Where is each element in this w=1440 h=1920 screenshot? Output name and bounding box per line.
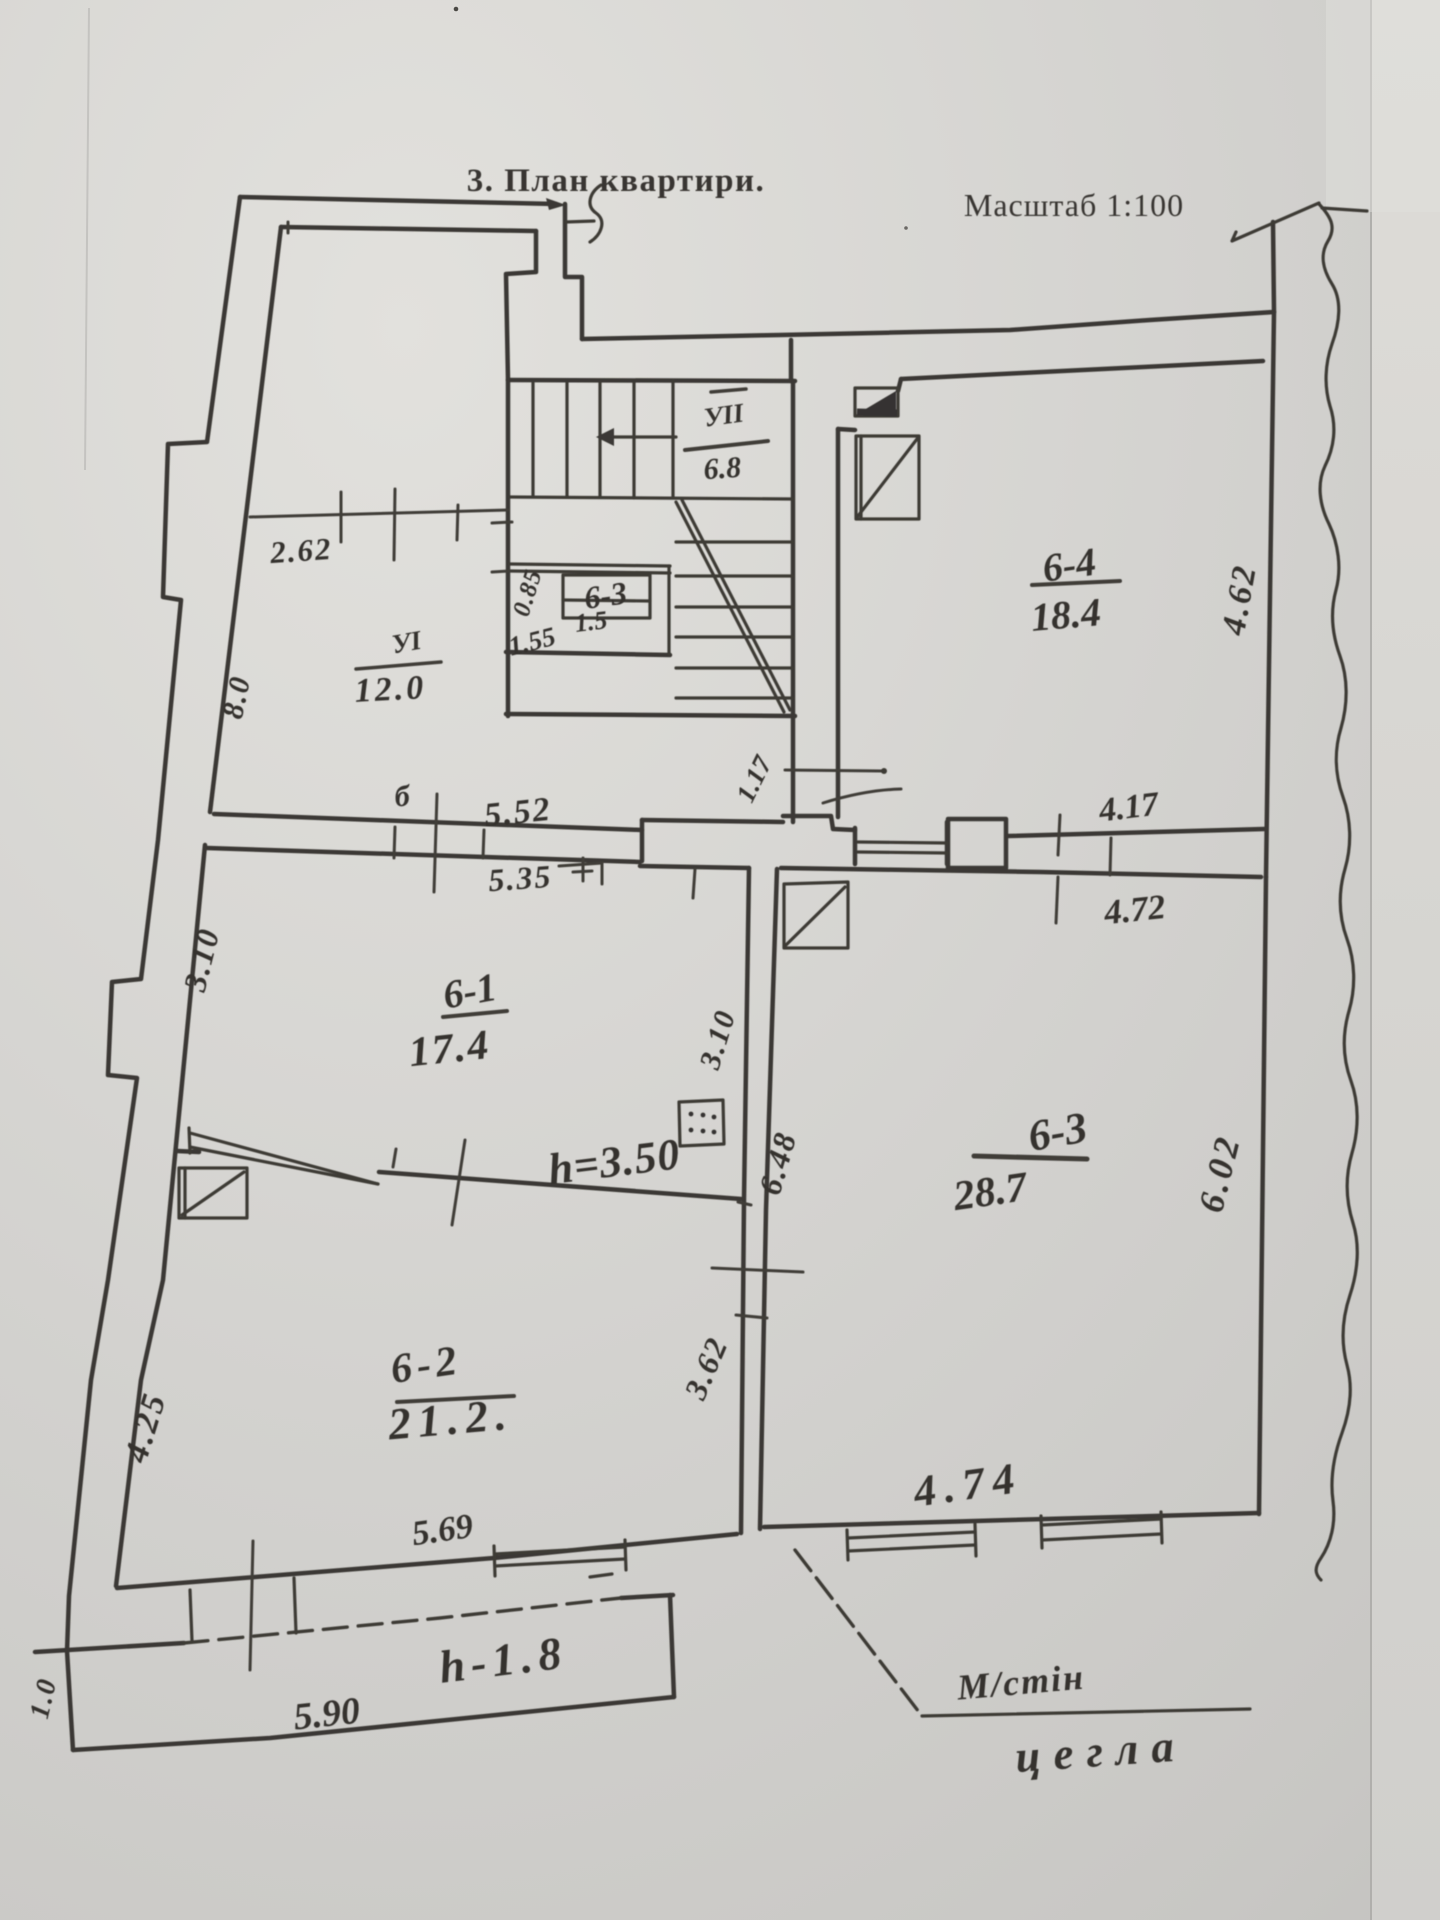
svg-text:6.8: 6.8 xyxy=(702,451,742,487)
svg-text:3. План квартири.: 3. План квартири. xyxy=(467,163,766,199)
svg-text:5.52: 5.52 xyxy=(482,791,553,835)
svg-text:6-2: 6-2 xyxy=(388,1337,465,1392)
svg-text:2.62: 2.62 xyxy=(268,531,334,570)
svg-text:18.4: 18.4 xyxy=(1029,589,1103,640)
svg-text:5.90: 5.90 xyxy=(291,1690,362,1739)
svg-text:4.17: 4.17 xyxy=(1096,785,1163,829)
svg-text:УІІ: УІІ xyxy=(702,397,747,432)
svg-text:17.4: 17.4 xyxy=(407,1022,493,1076)
svg-text:Масштаб 1:100: Масштаб 1:100 xyxy=(964,187,1184,223)
svg-text:6-4: 6-4 xyxy=(1040,539,1099,591)
svg-text:4.72: 4.72 xyxy=(1101,887,1167,932)
svg-text:12.0: 12.0 xyxy=(354,669,427,710)
svg-text:1.5: 1.5 xyxy=(573,605,609,638)
svg-text:6-1: 6-1 xyxy=(439,964,499,1018)
svg-text:5.35: 5.35 xyxy=(487,858,553,898)
svg-text:6-3: 6-3 xyxy=(1024,1102,1090,1160)
